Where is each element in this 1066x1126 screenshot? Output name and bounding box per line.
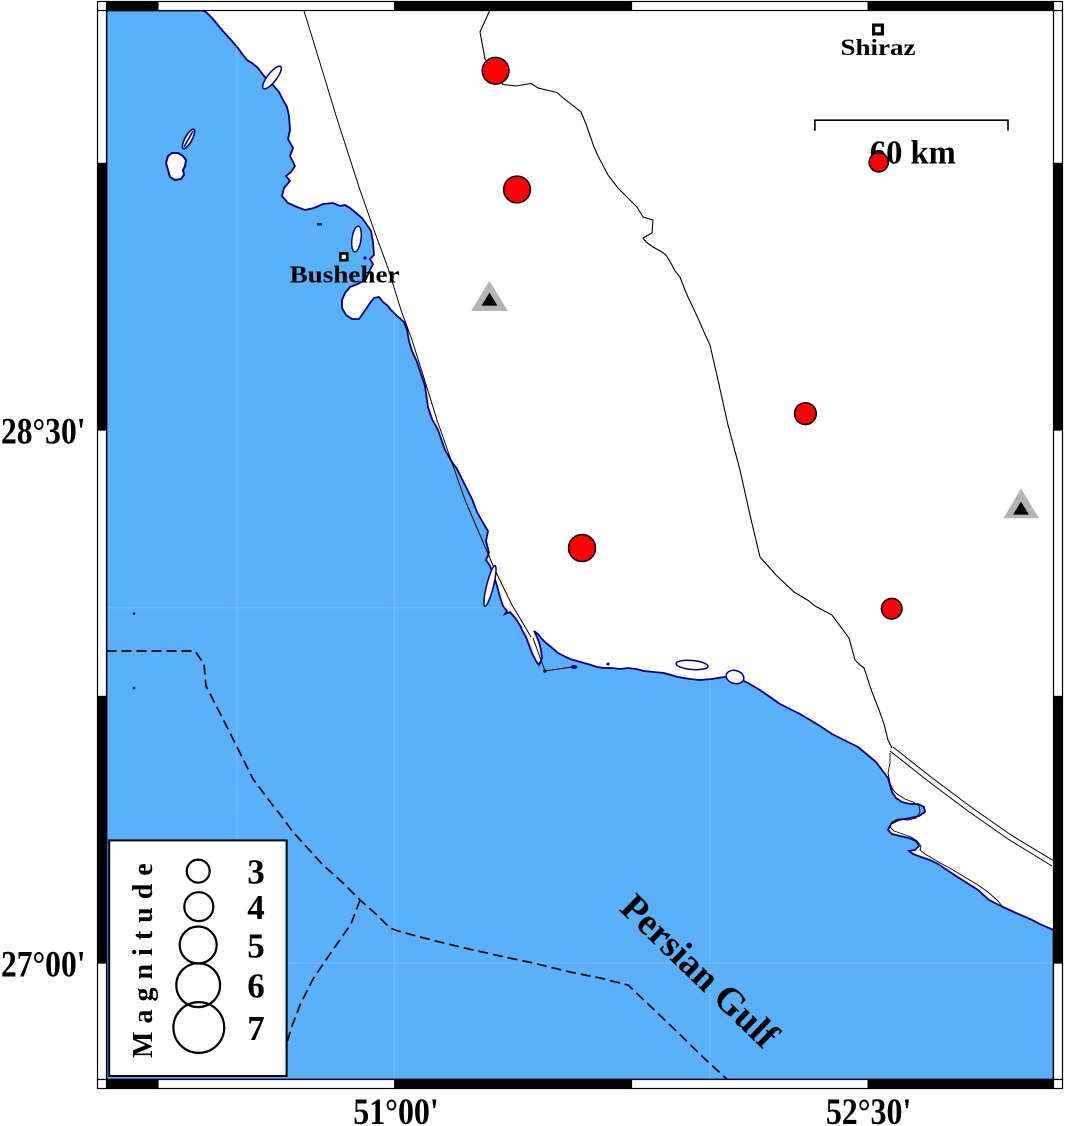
svg-text:Magnitude: Magnitude [128, 855, 159, 1058]
svg-text:Shiraz: Shiraz [841, 35, 916, 60]
svg-text:3: 3 [247, 853, 265, 892]
svg-text:51°00': 51°00' [353, 1092, 439, 1126]
svg-text:28°30': 28°30' [1, 412, 86, 453]
svg-text:52°30': 52°30' [826, 1092, 912, 1126]
svg-text:4: 4 [247, 888, 265, 927]
svg-text:7: 7 [247, 1009, 265, 1048]
svg-text:6: 6 [247, 967, 265, 1006]
svg-text:Busheher: Busheher [290, 263, 400, 289]
svg-text:5: 5 [247, 927, 265, 966]
svg-text:27°00': 27°00' [1, 945, 86, 986]
